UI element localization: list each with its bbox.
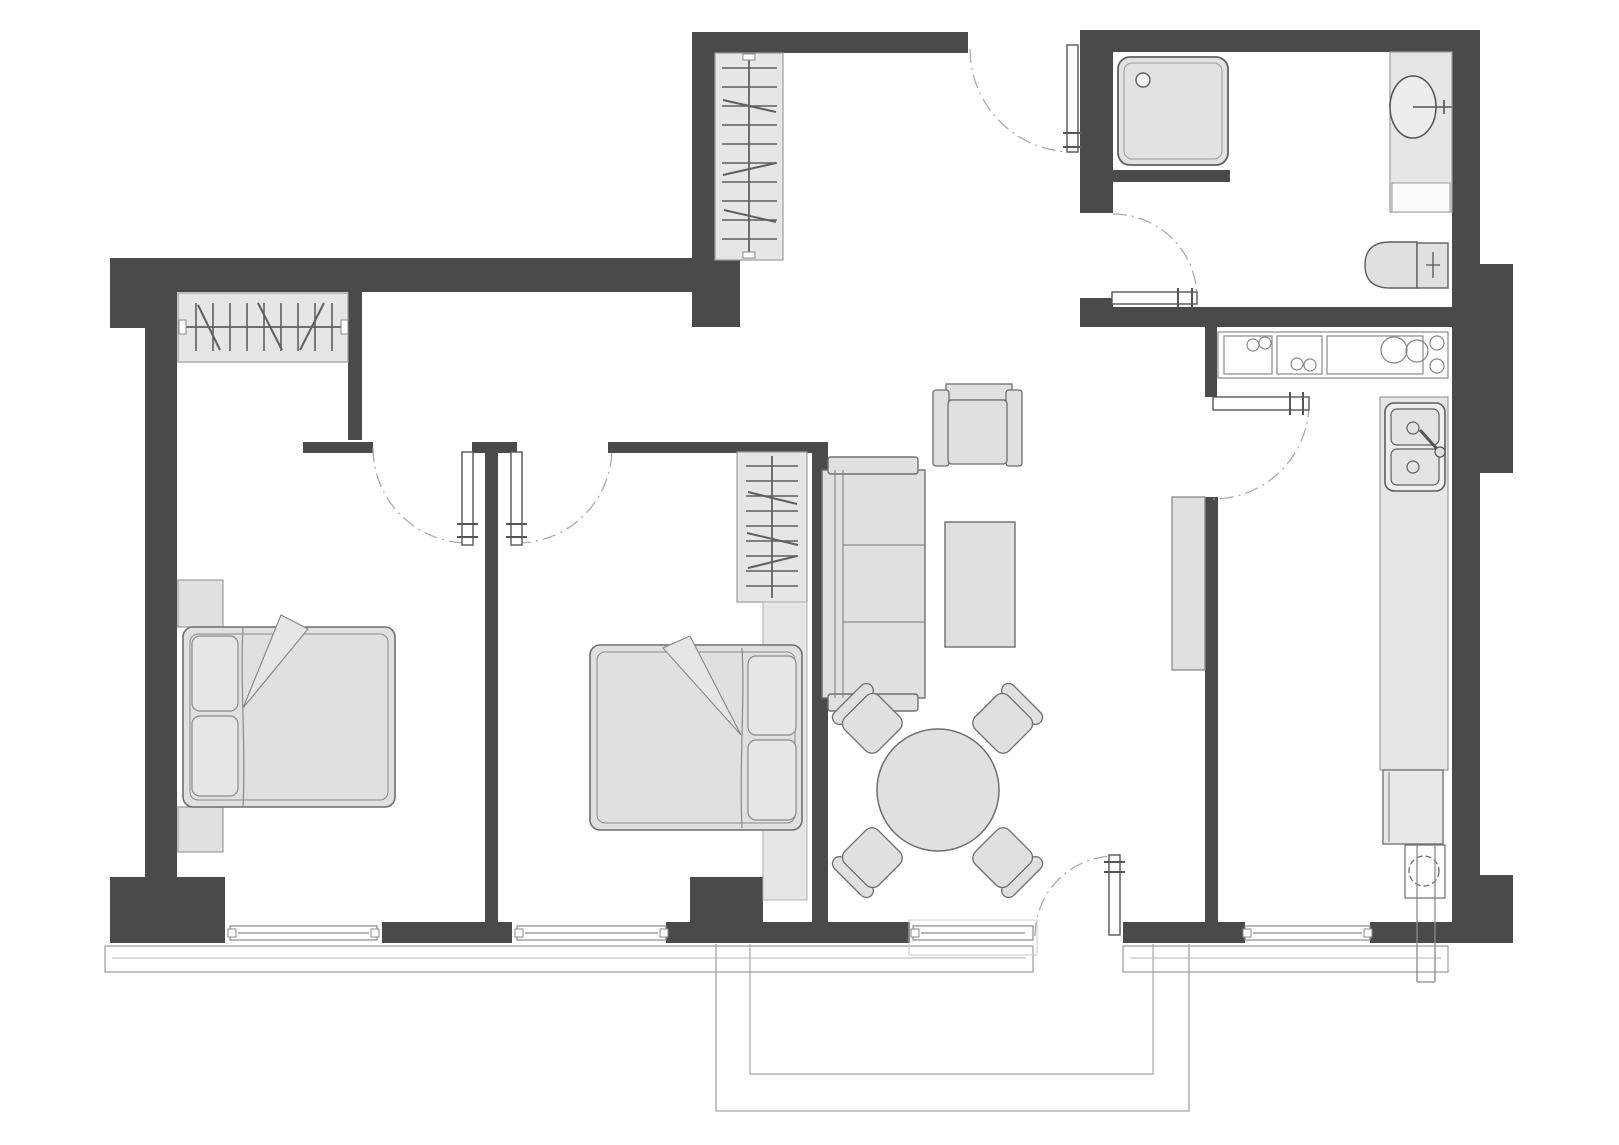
vanity-shelf — [1392, 183, 1450, 212]
armchair-seat — [948, 400, 1007, 464]
bathroom-right-wall — [1452, 30, 1480, 264]
bathroom-top-wall — [1080, 30, 1480, 52]
living-room — [822, 384, 1205, 900]
bedroom1-pillow-2 — [192, 716, 238, 796]
bathroom-door-arc — [1113, 214, 1197, 298]
bedroom-2 — [590, 452, 807, 900]
bedroom1-right-wall — [348, 292, 362, 440]
bedroom2-corner-block — [690, 877, 763, 922]
entry-hall — [715, 53, 783, 260]
sill-right — [1123, 946, 1448, 972]
top-wall-band — [110, 258, 740, 292]
entry-corner-block — [692, 292, 740, 327]
bedroom1-closet-cap-right — [341, 320, 348, 334]
bottom-pier-3 — [1123, 922, 1245, 943]
shower-partition — [1108, 170, 1230, 182]
bedroom2-pillow-1 — [748, 656, 796, 735]
floor-plan-canvas — [0, 0, 1619, 1145]
entry-top-wall — [692, 32, 968, 53]
armchair-arm-left — [933, 390, 949, 466]
bedroom1-nightstand-top — [178, 580, 223, 627]
sofa-armrest-top — [828, 457, 918, 474]
entry-closet-cap-bottom — [743, 252, 755, 258]
balcony-inner-line — [750, 944, 1153, 1074]
bathroom-left-wall — [1080, 52, 1113, 213]
bathroom-door-leaf — [1112, 292, 1197, 304]
bathroom-kitchen-wall — [1080, 307, 1455, 327]
kitchen-sink-faucet-base — [1435, 447, 1445, 457]
balcony-door-leaf — [1109, 855, 1120, 935]
left-wall-upper-thick — [110, 258, 177, 328]
bedroom2-top-wall — [608, 442, 817, 453]
bedroom1-door-leaf — [462, 452, 473, 545]
left-corner-block — [110, 877, 225, 943]
left-wall — [145, 328, 177, 877]
bedroom2-door-leaf — [511, 452, 522, 545]
balcony — [716, 944, 1189, 1111]
entry-closet-cap-top — [743, 54, 755, 60]
bedroom1-nightstand-bottom — [178, 807, 223, 852]
kitchen-sink-basin-2 — [1391, 449, 1439, 485]
armchair-back — [946, 384, 1012, 400]
bedroom-1 — [178, 293, 395, 852]
bedroom1-door-arc — [373, 448, 468, 543]
window-bedroom1-jamb-l — [228, 929, 236, 937]
window-kitchen-jamb-r — [1364, 929, 1372, 937]
window-kitchen-jamb-l — [1243, 929, 1251, 937]
shower-drain — [1136, 73, 1150, 87]
sill-left — [105, 946, 1033, 972]
window-bedroom2-jamb-l — [515, 929, 523, 937]
kitchen — [1218, 332, 1448, 982]
bedroom-divider-cap — [472, 442, 517, 453]
kitchen-sink-basin-1 — [1391, 409, 1439, 445]
bedroom2-door-arc — [517, 448, 612, 543]
bedroom-divider-wall — [485, 442, 498, 922]
entry-door-arc — [970, 49, 1073, 152]
sofa-body — [822, 470, 925, 698]
window-sills — [105, 946, 1448, 972]
balcony-outer-line — [716, 944, 1189, 1111]
tv-cabinet — [1172, 497, 1205, 670]
kitchen-door-arc — [1213, 403, 1309, 499]
kitchen-hob — [1327, 336, 1423, 374]
shower-tray — [1118, 57, 1228, 165]
right-wall — [1452, 332, 1480, 943]
bedroom1-door-stub — [303, 442, 373, 453]
entry-closet-wall — [692, 32, 715, 292]
window-bedroom1-jamb-r — [371, 929, 379, 937]
toilet-bowl — [1365, 242, 1417, 288]
bedroom1-pillow-1 — [192, 636, 238, 711]
bottom-right-wall — [1370, 922, 1513, 943]
bottom-pier-1 — [382, 922, 512, 943]
kitchen-oven — [1383, 770, 1443, 844]
window-living-jamb-l — [911, 929, 919, 937]
bedroom1-closet-cap-left — [179, 320, 186, 334]
window-bedroom2-jamb-r — [660, 929, 668, 937]
bottom-pier-2 — [666, 922, 910, 943]
kitchen-wall-lower — [1205, 497, 1218, 922]
bedroom2-pillow-2 — [748, 740, 796, 820]
dining-table — [877, 729, 999, 851]
coffee-table — [945, 522, 1015, 647]
kitchen-door-leaf — [1213, 397, 1309, 410]
balcony-door-arc — [1035, 856, 1115, 936]
floor-plan-page — [0, 0, 1619, 1145]
armchair-arm-right — [1006, 390, 1022, 466]
kitchen-wall-upper-stub — [1205, 327, 1217, 397]
entry-door-leaf — [1067, 45, 1078, 152]
